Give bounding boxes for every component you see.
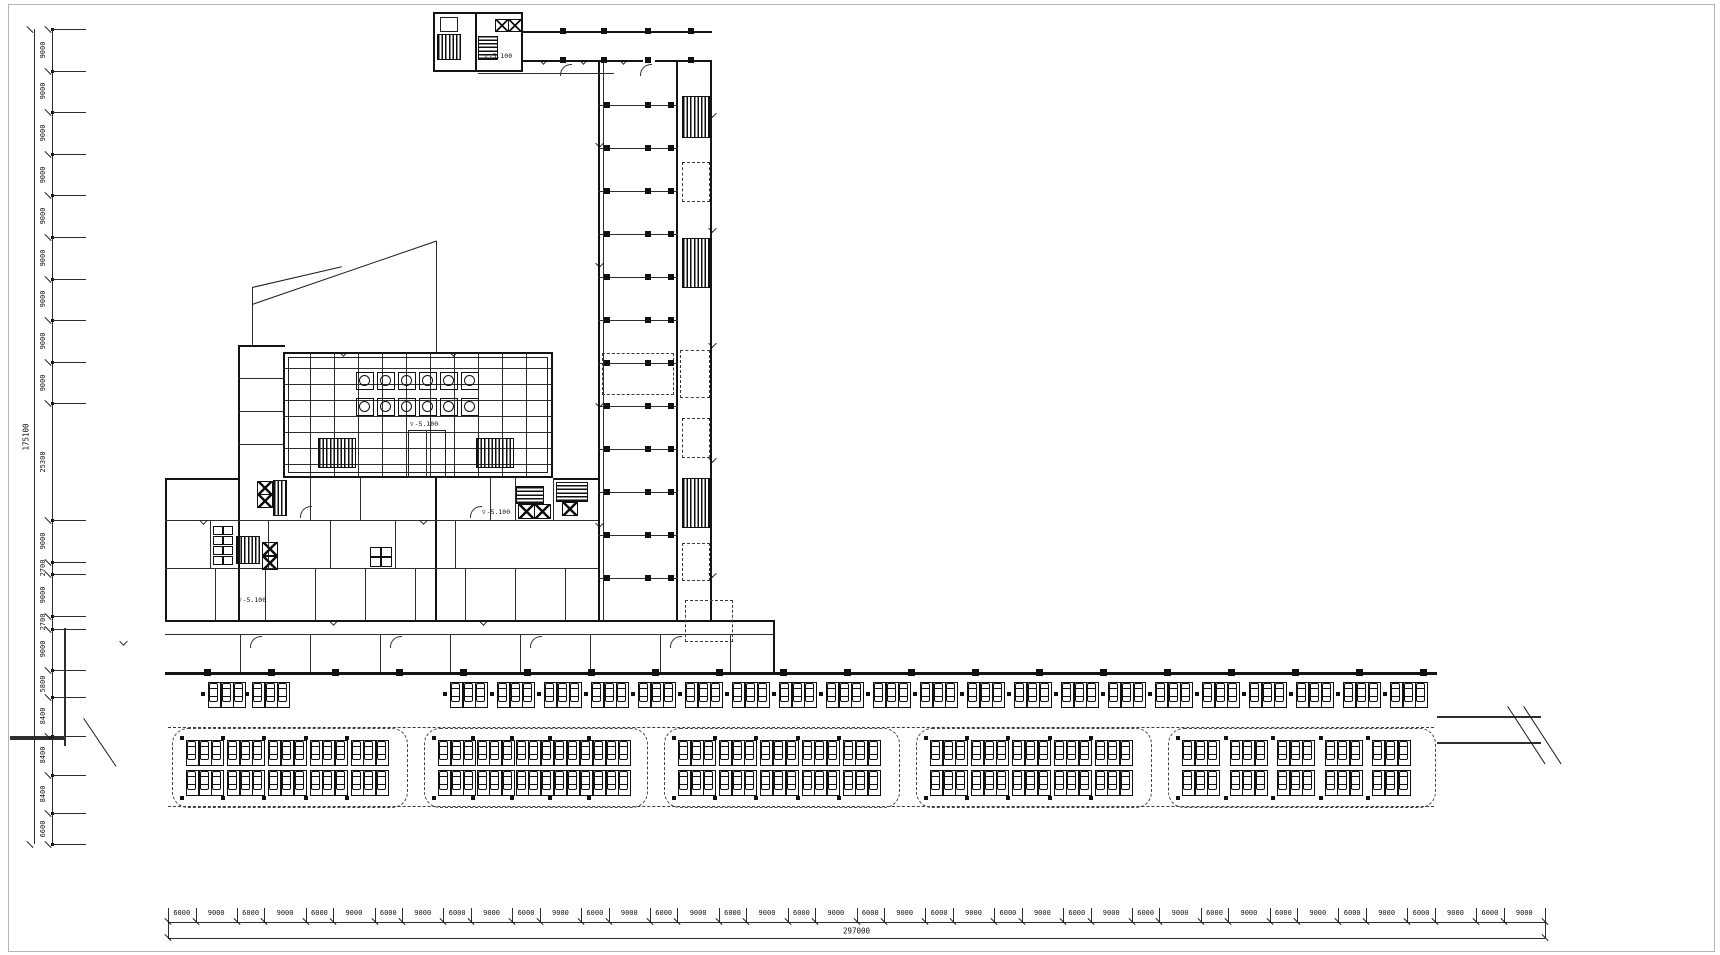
car-icon [1338,741,1347,760]
parking-stall [843,740,856,766]
dim-ext [52,697,86,698]
car-icon [529,741,538,760]
parking-stall [1255,740,1268,766]
column [604,489,610,495]
wheel-stop [1195,692,1199,696]
column [668,231,674,237]
shaft-void [685,600,733,642]
column [668,102,674,108]
dim-label: 9000 [39,374,47,391]
wheel-stop [201,692,205,696]
elevator-icon [518,504,535,519]
parking-stall [826,682,839,708]
wall-segment [523,31,712,33]
column [688,57,694,63]
stair-icon [516,486,544,504]
parking-stall [618,740,631,766]
parking-stall [1108,682,1121,708]
parking-stall [1356,682,1369,708]
dim-ext [1297,908,1298,922]
parking-stall [477,770,490,796]
car-icon [228,741,237,760]
car-icon [1108,741,1117,760]
column [645,575,651,581]
column [604,317,610,323]
dim-label: 6000 [311,909,328,917]
dim-label: 9000 [39,166,47,183]
column [908,669,915,676]
parking-stall [221,682,234,708]
wheel-stop [443,692,447,696]
parking-stall [606,770,619,796]
parking-stall [920,682,933,708]
column [604,188,610,194]
parking-stall [1120,770,1133,796]
column [645,532,651,538]
car-icon [1344,683,1353,702]
parking-stall [363,770,376,796]
wheel-stop [772,692,776,696]
dim-ext [52,279,86,280]
parking-stall [277,682,290,708]
floor-plan-sheet: 9000900090009000900090009000900090002530… [0,0,1720,955]
parking-stall [678,770,691,796]
car-icon [607,771,616,790]
dim-label: 6000 [1275,909,1292,917]
car-icon [212,741,221,760]
parking-stall [943,740,956,766]
car-icon [336,741,345,760]
dim-label: 9000 [39,291,47,308]
equipment-fan-icon [398,372,416,390]
dim-label: 6000 [655,909,672,917]
equipment-fan-icon [461,398,479,416]
parking-stall [294,770,307,796]
parking-stall [240,770,253,796]
parking-stall [310,770,323,796]
wheel-stop [960,692,964,696]
parking-stall [760,770,773,796]
parking-stall [1095,740,1108,766]
column [396,669,403,676]
car-icon [1357,683,1366,702]
wheel-stop [1006,796,1010,800]
partition-wall [365,568,366,620]
car-icon [478,741,487,760]
dim-label: 8400 [39,747,47,764]
elevator-icon [562,502,578,516]
car-icon [1108,771,1117,790]
dim-label: 6000 [1000,909,1017,917]
car-icon [581,771,590,790]
car-icon [478,771,487,790]
dim-label: 9000 [39,641,47,658]
car-icon [187,741,196,760]
dim-label: 6000 [862,909,879,917]
car-icon [570,683,579,702]
car-icon [452,741,461,760]
column [645,360,651,366]
car-icon [311,771,320,790]
column [604,403,610,409]
parking-stall [719,770,732,796]
parking-stall [1054,740,1067,766]
parking-stall [898,682,911,708]
car-icon [869,741,878,760]
parking-stall [616,682,629,708]
stair-icon [556,482,588,502]
car-icon [464,683,473,702]
parking-stall [1120,740,1133,766]
level-value: -5.100 [489,52,512,60]
parking-stall [580,740,593,766]
level-triangle-icon: ▽ [482,509,486,516]
dim-label: 9000 [827,909,844,917]
parking-stall [252,740,265,766]
partition-wall [1437,716,1541,718]
parking-stall [528,740,541,766]
equipment-fan-icon [398,398,416,416]
dim-label: 9000 [965,909,982,917]
car-icon [944,741,953,760]
dim-label: 9000 [39,533,47,550]
car-icon [869,771,878,790]
parking-stall [1038,770,1051,796]
partition-wall [598,148,678,149]
wheel-stop [1089,736,1093,740]
dim-label: 6000 [1481,909,1498,917]
level-value: -5.100 [243,596,266,604]
elevator-icon [257,481,273,495]
car-icon [1386,771,1395,790]
car-icon [934,683,943,702]
fixture [213,536,223,545]
wheel-stop [345,796,349,800]
wheel-stop [432,796,436,800]
car-icon [295,771,304,790]
parking-stall [732,740,745,766]
wheel-stop [725,692,729,696]
wheel-stop [1289,692,1293,696]
column [268,669,275,676]
dim-label: 9000 [39,208,47,225]
parking-stall [710,682,723,708]
parking-stall [1168,682,1181,708]
parking-stall [268,740,281,766]
car-icon [844,771,853,790]
car-icon [278,683,287,702]
car-icon [1169,683,1178,702]
parking-stall [996,740,1009,766]
dim-ext [52,320,86,321]
parking-stall [376,740,389,766]
dim-ext [581,908,582,922]
parking-stall [252,682,265,708]
parking-stall [463,682,476,708]
car-icon [1080,771,1089,790]
car-icon [581,741,590,760]
parking-stall [281,740,294,766]
parking-stall [1025,770,1038,796]
partition-wall [478,73,614,74]
car-icon [639,683,648,702]
parking-stall [1074,682,1087,708]
wall-segment [433,12,523,14]
fixture [381,547,392,557]
parking-stall [1325,770,1338,796]
parking-stall [992,682,1005,708]
dim-chain-line [52,29,53,844]
car-icon [745,771,754,790]
car-icon [1243,741,1252,760]
elevator-icon [257,494,273,508]
ramp-centerline [426,430,427,476]
partition-wall [520,634,521,672]
car-icon [517,771,526,790]
dim-ext [52,616,86,617]
car-icon [720,771,729,790]
car-icon [1013,771,1022,790]
wheel-stop [1383,692,1387,696]
car-icon [503,741,512,760]
car-icon [1303,741,1312,760]
fixture [213,546,223,555]
car-icon [1275,683,1284,702]
car-icon [1278,771,1287,790]
parking-stall [1180,682,1193,708]
car-icon [253,771,262,790]
car-icon [269,741,278,760]
car-icon [568,741,577,760]
car-icon [931,771,940,790]
dim-ext [994,908,995,922]
car-icon [377,741,386,760]
car-icon [605,683,614,702]
column [604,102,610,108]
dim-total-line [168,938,1545,939]
column [668,575,674,581]
parking-stall [335,740,348,766]
parking-stall [955,740,968,766]
car-icon [607,741,616,760]
dim-label: 9000 [1378,909,1395,917]
car-icon [1399,771,1408,790]
dim-ext [52,736,86,737]
car-icon [295,741,304,760]
car-icon [200,771,209,790]
car-icon [815,741,824,760]
car-icon [1183,741,1192,760]
parking-stall [792,682,805,708]
fixture [213,526,223,535]
wheel-stop [587,796,591,800]
car-icon [439,741,448,760]
car-icon [1196,741,1205,760]
wheel-stop [924,736,928,740]
wall-segment [238,345,285,347]
parking-stall [930,770,943,796]
partition-wall [265,568,266,620]
stair-icon [682,238,710,288]
car-icon [503,771,512,790]
elevator-icon [495,19,509,32]
car-icon [1369,683,1378,702]
dim-ext [52,29,86,30]
wheel-stop [490,692,494,696]
car-icon [761,741,770,760]
parking-stall [971,740,984,766]
partition-wall [64,628,66,746]
parking-stall [1368,682,1381,708]
parking-stall [1012,770,1025,796]
dim-total-line [34,29,35,844]
wall-segment [283,352,553,354]
parking-stall [438,740,451,766]
dim-label: 6000 [1413,909,1430,917]
wall-segment [165,672,1437,675]
parking-stall [886,682,899,708]
parking-stall [1242,770,1255,796]
dim-ext [1063,908,1064,922]
equipment-fan-icon [377,372,395,390]
car-icon [542,741,551,760]
parking-stall [252,770,265,796]
parking-stall [971,770,984,796]
parking-stall [438,770,451,796]
car-icon [993,683,1002,702]
column [524,669,531,676]
column [1292,669,1299,676]
car-icon [1297,683,1306,702]
parking-stall [1302,770,1315,796]
parking-stall [557,682,570,708]
car-icon [323,771,332,790]
parking-stall [265,682,278,708]
wheel-stop [1319,736,1323,740]
wheel-stop [1319,796,1323,800]
parking-stall [1255,770,1268,796]
parking-stall [1325,740,1338,766]
level-triangle-icon: ▽ [410,421,414,428]
wheel-stop [1176,796,1180,800]
parking-stall [773,740,786,766]
parking-stall [868,740,881,766]
partition-wall [360,478,361,520]
car-icon [617,683,626,702]
fixture [223,546,233,555]
car-icon [692,741,701,760]
equipment-fan-icon [377,398,395,416]
parking-stall [502,740,515,766]
parking-stall [463,770,476,796]
wheel-stop [1242,692,1246,696]
car-icon [1416,683,1425,702]
column [645,274,651,280]
car-icon [840,683,849,702]
parking-stall [685,682,698,708]
car-icon [619,741,628,760]
wheel-stop [262,796,266,800]
wheel-stop [672,736,676,740]
parking-stall [1195,740,1208,766]
parking-stall [984,770,997,796]
parking-stall [1155,682,1168,708]
car-icon [1087,683,1096,702]
fixture [223,536,233,545]
equipment-fan-icon [440,398,458,416]
parking-stall [497,682,510,708]
car-icon [523,683,532,702]
parking-stall [516,770,529,796]
car-icon [266,683,275,702]
parking-stall [1242,740,1255,766]
dim-label: 6000 [242,909,259,917]
car-icon [1181,683,1190,702]
car-icon [222,683,231,702]
car-icon [1291,771,1300,790]
wheel-stop [510,796,514,800]
parking-stall [1182,740,1195,766]
dim-label: 6000 [518,909,535,917]
wheel-stop [221,736,225,740]
parking-stall [1066,740,1079,766]
wheel-stop [304,736,308,740]
dim-ext [1338,908,1339,922]
car-icon [253,741,262,760]
shaft-void [682,162,710,202]
column [645,489,651,495]
wheel-stop [965,736,969,740]
partition-wall [598,492,678,493]
car-icon [856,741,865,760]
car-icon [364,741,373,760]
wall-segment [553,478,600,480]
shaft-void [602,353,674,395]
parking-stall [1038,740,1051,766]
wheel-stop [1048,736,1052,740]
parking-stall [1385,740,1398,766]
car-icon [720,741,729,760]
column [588,669,595,676]
car-icon [733,741,742,760]
wheel-stop [537,692,541,696]
column [1036,669,1043,676]
car-icon [803,771,812,790]
dim-ext [52,844,86,845]
wheel-stop [1336,692,1340,696]
level-marker: ▽-5.100 [484,52,512,60]
column [668,274,674,280]
parking-stall [1277,740,1290,766]
parking-stall [544,682,557,708]
level-marker: ▽-5.100 [410,420,438,428]
dim-ext [1545,908,1546,922]
dim-label: 9000 [1447,909,1464,917]
car-icon [692,771,701,790]
parking-stall [703,770,716,796]
wheel-stop [1007,692,1011,696]
dim-label: 6000 [380,909,397,917]
parking-stall [1182,770,1195,796]
car-icon [498,683,507,702]
parking-stall [541,740,554,766]
dim-label: 9000 [690,909,707,917]
car-icon [1291,741,1300,760]
stair-icon [476,438,514,468]
car-icon [1134,683,1143,702]
column [688,28,694,34]
partition-wall [598,449,678,450]
